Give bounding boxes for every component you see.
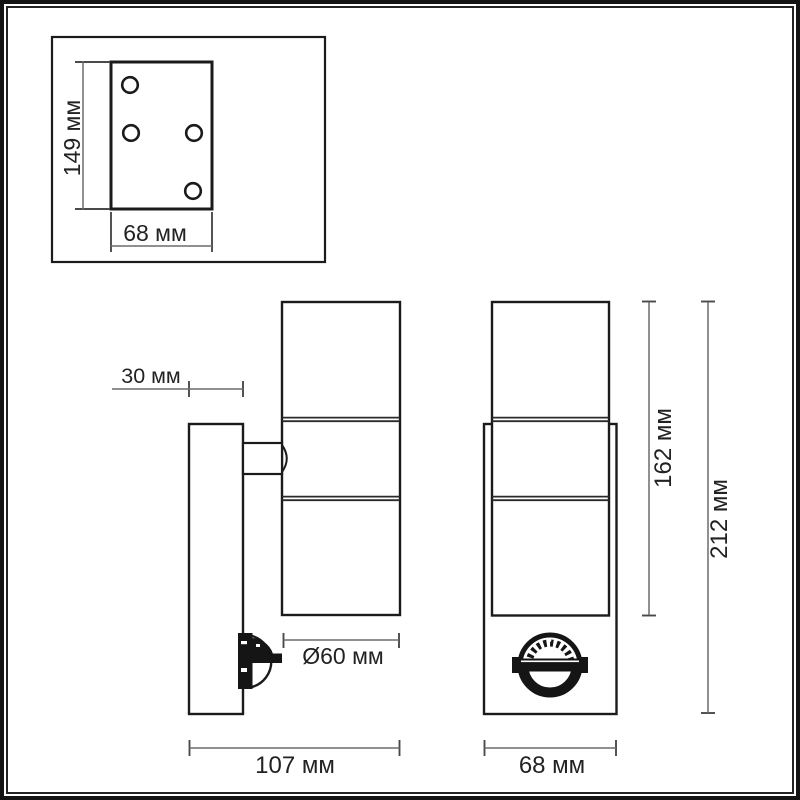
sensor-side-highlight-2 [241,668,247,672]
front-view: 162 мм 212 мм 68 мм [484,302,733,780]
sensor-side-highlight-1 [241,641,247,644]
dim-label-front-width: 68 мм [519,752,585,779]
front-lamp-body [492,302,609,616]
sensor-front-bar [517,659,583,672]
sensor-front-bar-highlight [521,661,579,663]
motion-sensor-side [238,633,282,689]
dim-label-diameter: Ø60 мм [302,643,384,669]
sensor-side-bar [249,654,282,664]
dim-label-depth: 107 мм [255,752,335,779]
technical-drawing-canvas: 149 мм 68 мм [0,0,800,800]
dim-label-plate-width: 68 мм [123,220,187,246]
sensor-front-top-notch [549,639,552,642]
side-view: 30 мм Ø60 мм 107 мм [112,302,400,779]
dim-label-body-height: 162 мм [650,408,677,488]
dimension-drawing: 149 мм 68 мм [0,0,800,800]
side-lamp-body [282,302,400,615]
mount-arm [243,443,282,474]
dim-label-total-height: 212 мм [706,479,733,559]
dim-label-plate-height: 149 мм [59,100,85,176]
mounting-plate-view: 149 мм 68 мм [52,37,325,262]
side-backplate [189,424,243,714]
dim-label-offset: 30 мм [121,364,180,388]
sensor-side-highlight-3 [256,644,260,647]
mounting-plate-outline [111,62,212,209]
